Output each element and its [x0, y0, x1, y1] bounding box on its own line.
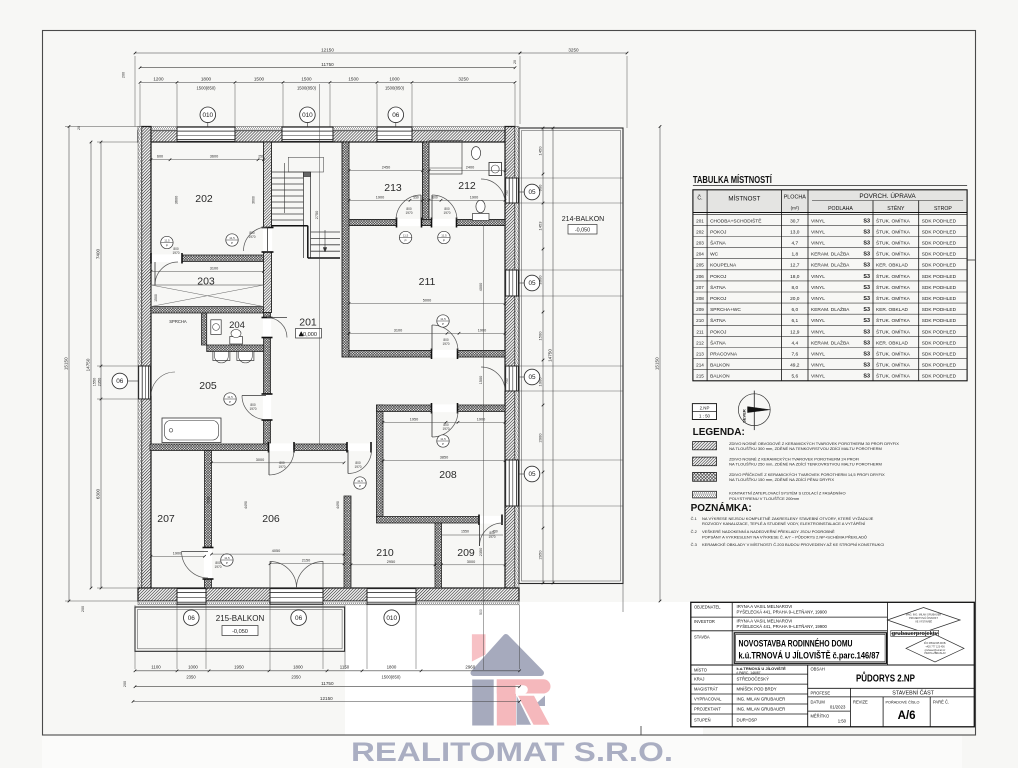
svg-text:20,0: 20,0	[790, 296, 800, 302]
svg-text:REALITOMAT S.R.O.: REALITOMAT S.R.O.	[351, 737, 673, 767]
svg-text:KER. OBKLAD: KER. OBKLAD	[876, 307, 909, 313]
svg-text:1900: 1900	[477, 417, 485, 421]
svg-text:1500(850): 1500(850)	[196, 86, 216, 91]
svg-text:1800: 1800	[201, 76, 212, 81]
svg-text:ŠATNA: ŠATNA	[710, 284, 726, 291]
svg-text:202: 202	[195, 193, 213, 205]
svg-text:1900: 1900	[478, 328, 486, 332]
svg-text:3600: 3600	[252, 196, 256, 204]
svg-text:2950: 2950	[387, 560, 395, 564]
svg-text:4000: 4000	[479, 283, 483, 291]
svg-text:KOUPELNA: KOUPELNA	[710, 263, 737, 269]
svg-text:SPRCHA+WC: SPRCHA+WC	[710, 307, 741, 313]
svg-text:ŠTUK. OMÍTKA: ŠTUK. OMÍTKA	[876, 328, 911, 335]
svg-text:REVIZE: REVIZE	[853, 699, 868, 704]
svg-text:SPRCHA: SPRCHA	[169, 319, 187, 324]
svg-text:Č.3: Č.3	[691, 542, 698, 547]
svg-text:PRACOVNA: PRACOVNA	[710, 351, 738, 357]
svg-text:2350: 2350	[291, 674, 301, 679]
svg-text:S3: S3	[863, 285, 870, 291]
svg-text:č.PARC. 146/87: č.PARC. 146/87	[737, 671, 761, 675]
svg-text:SDK PODHLED: SDK PODHLED	[922, 252, 957, 258]
svg-text:S3: S3	[863, 307, 870, 313]
svg-text:4050: 4050	[272, 549, 280, 553]
svg-text:A/6: A/6	[898, 710, 916, 722]
svg-text:1950: 1950	[234, 665, 244, 670]
svg-text:TABULKA MÍSTNOSTÍ: TABULKA MÍSTNOSTÍ	[693, 174, 772, 186]
svg-text:1200: 1200	[153, 76, 164, 81]
svg-text:VINYL: VINYL	[811, 351, 825, 357]
svg-text:213: 213	[696, 351, 704, 356]
svg-text:ŠATNA: ŠATNA	[710, 239, 726, 246]
svg-text:1950: 1950	[410, 417, 418, 421]
svg-text:600: 600	[432, 195, 438, 199]
svg-text:-0,050: -0,050	[575, 228, 590, 234]
svg-text:11,5: 11,5	[164, 239, 170, 243]
svg-text:2450: 2450	[382, 166, 390, 170]
svg-text:NA TLOUŠŤKU 150 mm, ZDĚNÉ NA Z: NA TLOUŠŤKU 150 mm, ZDĚNÉ NA ZDÍCÍ PĚNU …	[729, 477, 834, 482]
svg-text:1800: 1800	[293, 665, 303, 670]
svg-text:250: 250	[258, 155, 264, 159]
svg-text:DATUM: DATUM	[811, 699, 826, 704]
svg-text:203: 203	[197, 276, 215, 288]
svg-text:2350: 2350	[186, 674, 196, 679]
svg-text:14750: 14750	[85, 358, 90, 371]
svg-text:1500: 1500	[154, 294, 158, 302]
svg-text:P: P	[359, 484, 361, 488]
svg-text:18,0: 18,0	[790, 274, 800, 280]
svg-text:VINYL: VINYL	[811, 240, 825, 246]
svg-text:1500: 1500	[254, 76, 265, 81]
svg-text:SDK PODHLED: SDK PODHLED	[922, 329, 957, 335]
svg-text:2.NP: 2.NP	[700, 405, 710, 410]
svg-text:NOVOSTAVBA RODINNÉHO DOMU: NOVOSTAVBA RODINNÉHO DOMU	[739, 637, 853, 649]
svg-text:7400: 7400	[95, 248, 100, 259]
svg-text:209: 209	[696, 307, 704, 312]
svg-text:7500: 7500	[207, 496, 211, 504]
svg-text:MÍSTO: MÍSTO	[694, 668, 707, 673]
svg-text:200: 200	[122, 72, 126, 78]
svg-text:2400: 2400	[466, 166, 474, 170]
svg-text:215-BALKON: 215-BALKON	[216, 614, 265, 623]
svg-text:2750: 2750	[315, 211, 319, 219]
svg-text:k.ú.TRNOVÁ U JÍLOVIŠTĚ č.parc.: k.ú.TRNOVÁ U JÍLOVIŠTĚ č.parc.146/87	[739, 650, 880, 662]
svg-text:201: 201	[696, 218, 704, 223]
svg-text:DUR+DSP: DUR+DSP	[737, 718, 758, 723]
svg-text:5,6: 5,6	[791, 374, 798, 380]
svg-text:3000: 3000	[467, 560, 475, 564]
svg-text:11750: 11750	[321, 62, 334, 67]
svg-text:POKOJ: POKOJ	[710, 229, 727, 235]
svg-text:1100: 1100	[151, 665, 161, 670]
svg-text:3850: 3850	[440, 456, 448, 460]
svg-text:12150: 12150	[321, 47, 334, 52]
svg-text:11750: 11750	[321, 681, 334, 686]
svg-text:211: 211	[419, 276, 436, 288]
svg-text:1970: 1970	[488, 535, 495, 539]
svg-text:15150: 15150	[63, 357, 68, 370]
svg-text:204: 204	[696, 252, 704, 257]
svg-text:STUPEŇ: STUPEŇ	[694, 718, 711, 723]
svg-text:SDK PODHLED: SDK PODHLED	[922, 318, 957, 324]
svg-text:INVESTOR: INVESTOR	[694, 619, 715, 624]
svg-text:PROFESE: PROFESE	[811, 690, 831, 695]
svg-text:S3: S3	[863, 374, 870, 380]
svg-text:S3: S3	[863, 340, 870, 346]
svg-text:S3: S3	[863, 274, 870, 280]
svg-text:2350: 2350	[479, 548, 483, 556]
svg-text:SDK PODHLED: SDK PODHLED	[922, 240, 957, 246]
svg-text:14750: 14750	[547, 349, 552, 362]
svg-text:06: 06	[116, 378, 124, 385]
svg-text:213: 213	[384, 182, 402, 194]
svg-text:3600: 3600	[210, 155, 218, 159]
svg-text:P: P	[442, 322, 444, 326]
svg-text:1970: 1970	[443, 211, 450, 215]
svg-text:P: P	[229, 400, 231, 404]
svg-text:WC: WC	[710, 252, 719, 258]
svg-text:VYPRACOVAL: VYPRACOVAL	[694, 697, 722, 702]
svg-text:SDK PODHLED: SDK PODHLED	[922, 218, 957, 224]
svg-text:P: P	[226, 561, 228, 565]
svg-text:VINYL: VINYL	[811, 274, 825, 280]
svg-text:15150: 15150	[654, 357, 659, 370]
svg-text:207: 207	[157, 513, 175, 525]
svg-text:VINYL: VINYL	[811, 229, 825, 235]
svg-text:05: 05	[528, 374, 536, 381]
svg-text:1800: 1800	[387, 665, 397, 670]
svg-text:8,0: 8,0	[791, 285, 798, 291]
svg-text:STROP: STROP	[934, 206, 952, 212]
svg-text:3000: 3000	[256, 458, 264, 462]
svg-text:KERAMICKÉ OBKLADY V MÍSTNOSTI: KERAMICKÉ OBKLADY V MÍSTNOSTI Č.203 BUDO…	[702, 542, 884, 547]
svg-text:KER. OBKLAD: KER. OBKLAD	[876, 340, 909, 346]
svg-text:214: 214	[696, 363, 704, 368]
svg-text:POKOJ: POKOJ	[710, 296, 727, 302]
svg-text:4490: 4490	[244, 501, 248, 509]
svg-text:2150: 2150	[302, 559, 310, 563]
svg-text:0,000: 0,000	[303, 332, 317, 338]
svg-text:ŠATNA: ŠATNA	[710, 339, 726, 346]
svg-text:POLYSTYRENU V TLOUŠŤCE 200mm: POLYSTYRENU V TLOUŠŤCE 200mm	[729, 496, 800, 501]
svg-text:05: 05	[528, 471, 536, 478]
svg-text:210: 210	[376, 547, 394, 559]
svg-text:MÍSTNOST: MÍSTNOST	[728, 196, 760, 203]
svg-text:SDK PODHLED: SDK PODHLED	[922, 285, 957, 291]
svg-text:ŠTUK. OMÍTKA: ŠTUK. OMÍTKA	[876, 373, 911, 380]
svg-text:06: 06	[188, 615, 196, 622]
svg-text:SDK PODHLED: SDK PODHLED	[922, 229, 957, 235]
svg-text:3600: 3600	[175, 196, 179, 204]
svg-text:3250: 3250	[458, 76, 469, 81]
svg-text:1453: 1453	[537, 221, 542, 231]
svg-text:POZNÁMKA:: POZNÁMKA:	[691, 501, 752, 514]
svg-text:S3: S3	[863, 252, 870, 258]
svg-text:200: 200	[81, 606, 85, 612]
svg-text:ŠTUK. OMÍTKA: ŠTUK. OMÍTKA	[876, 284, 911, 291]
svg-text:210: 210	[696, 318, 704, 323]
svg-text:11,5: 11,5	[227, 395, 233, 399]
svg-text:12,9: 12,9	[790, 329, 800, 335]
svg-text:P: P	[231, 241, 233, 245]
svg-text:KER. OBKLAD: KER. OBKLAD	[876, 263, 909, 269]
svg-text:MNÍŠEK POD BRDY: MNÍŠEK POD BRDY	[737, 687, 777, 692]
svg-text:S3: S3	[863, 296, 870, 302]
svg-text:010: 010	[302, 112, 313, 119]
svg-text:1500: 1500	[479, 376, 483, 384]
svg-text:214-BALKON: 214-BALKON	[562, 216, 604, 223]
svg-text:204: 204	[229, 320, 245, 331]
svg-text:ŠTUK. OMÍTKA: ŠTUK. OMÍTKA	[876, 217, 911, 224]
svg-text:SEVER: SEVER	[742, 409, 747, 423]
svg-text:ŠTUK. OMÍTKA: ŠTUK. OMÍTKA	[876, 273, 911, 280]
svg-text:1500(850): 1500(850)	[297, 86, 317, 91]
svg-text:P: P	[166, 244, 168, 248]
svg-text:1970: 1970	[442, 342, 449, 346]
svg-text:1970: 1970	[249, 407, 256, 411]
svg-text:S3: S3	[863, 229, 870, 235]
svg-text:S3: S3	[863, 351, 870, 357]
svg-text:212: 212	[696, 340, 704, 345]
svg-text:SDK PODHLED: SDK PODHLED	[922, 274, 957, 280]
svg-text:1970: 1970	[442, 427, 449, 431]
svg-text:S3: S3	[863, 218, 870, 224]
svg-text:900: 900	[537, 184, 542, 191]
svg-text:P: P	[443, 239, 445, 243]
svg-text:206: 206	[262, 513, 280, 525]
svg-text:1500: 1500	[537, 331, 542, 341]
svg-text:1,8: 1,8	[791, 252, 798, 258]
svg-text:49,2: 49,2	[790, 363, 800, 369]
svg-text:MAGISTRÁT: MAGISTRÁT	[694, 687, 718, 692]
svg-text:212: 212	[458, 180, 476, 192]
svg-text:ŠTUK. OMÍTKA: ŠTUK. OMÍTKA	[876, 239, 911, 246]
svg-text:STAVEBNÍ ČÁST: STAVEBNÍ ČÁST	[892, 690, 934, 697]
svg-text:200: 200	[123, 681, 127, 687]
svg-text:4490: 4490	[336, 501, 340, 509]
svg-text:OBSAH: OBSAH	[811, 666, 825, 671]
svg-text:VINYL: VINYL	[811, 363, 825, 369]
svg-text:ROZVODY KANALIZACE, TEPLÉ A ST: ROZVODY KANALIZACE, TEPLÉ A STUDENÉ VODY…	[702, 521, 866, 526]
svg-text:ŠTUK. OMÍTKA: ŠTUK. OMÍTKA	[876, 228, 911, 235]
svg-text:ŠTUK. OMÍTKA: ŠTUK. OMÍTKA	[876, 362, 911, 369]
svg-text:S3: S3	[863, 363, 870, 369]
svg-text:1500(850): 1500(850)	[385, 86, 405, 91]
svg-text:500: 500	[479, 609, 483, 615]
svg-text:SDK PODHLED: SDK PODHLED	[922, 351, 957, 357]
svg-text:S3: S3	[863, 318, 870, 324]
svg-text:1 : 50: 1 : 50	[699, 413, 711, 418]
svg-text:1550: 1550	[93, 378, 97, 386]
svg-text:215: 215	[696, 374, 704, 379]
svg-text:1970: 1970	[278, 465, 285, 469]
svg-text:1900: 1900	[470, 195, 478, 199]
svg-text:POVRCH. ÚPRAVA: POVRCH. ÚPRAVA	[859, 191, 916, 200]
svg-text:1550: 1550	[461, 530, 469, 534]
svg-text:208: 208	[696, 296, 704, 301]
svg-text:206: 206	[696, 274, 704, 279]
svg-text:1150: 1150	[340, 665, 350, 670]
svg-text:06: 06	[392, 112, 400, 119]
svg-text:ŠTUK. OMÍTKA: ŠTUK. OMÍTKA	[876, 317, 911, 324]
svg-text:ING. MILAN GRUBAUER: ING. MILAN GRUBAUER	[737, 707, 786, 712]
svg-text:211: 211	[696, 329, 704, 334]
svg-text:Č.: Č.	[697, 195, 702, 202]
svg-text:VINYL: VINYL	[811, 218, 825, 224]
svg-text:1000: 1000	[537, 377, 542, 387]
svg-text:STŘEDOČESKÝ: STŘEDOČESKÝ	[737, 677, 770, 682]
svg-text:201: 201	[299, 317, 317, 329]
svg-text:1900: 1900	[376, 195, 384, 199]
svg-text:205: 205	[696, 263, 704, 268]
svg-text:POKOJ: POKOJ	[710, 329, 727, 335]
svg-text:12150: 12150	[320, 696, 333, 701]
svg-text:PRAHA-ZBRASLAV: PRAHA-ZBRASLAV	[924, 652, 946, 655]
svg-text:1:50: 1:50	[838, 718, 847, 723]
svg-text:NA TLOUŠŤKU 300 mm, ZDĚNÉ NA T: NA TLOUŠŤKU 300 mm, ZDĚNÉ NA TENKOVRSTVO…	[729, 446, 882, 451]
svg-text:4,7: 4,7	[791, 240, 798, 246]
svg-text:11,5: 11,5	[224, 556, 230, 560]
svg-text:VINYL: VINYL	[811, 374, 825, 380]
svg-text:1500: 1500	[301, 76, 312, 81]
svg-text:600: 600	[157, 155, 163, 159]
svg-text:05: 05	[528, 280, 536, 287]
svg-text:STAVBA: STAVBA	[694, 635, 710, 640]
svg-text:VINYL: VINYL	[811, 296, 825, 302]
svg-text:POŘADOVÉ ČÍSLO: POŘADOVÉ ČÍSLO	[886, 699, 920, 704]
svg-text:12,7: 12,7	[790, 263, 800, 269]
svg-text:6,0: 6,0	[791, 307, 798, 313]
svg-text:SDK PODHLED: SDK PODHLED	[922, 363, 957, 369]
svg-text:5000: 5000	[423, 299, 431, 303]
svg-text:KRAJ: KRAJ	[694, 677, 704, 682]
svg-text:1970: 1970	[214, 565, 221, 569]
svg-text:S3: S3	[863, 240, 870, 246]
svg-text:ŠATNA: ŠATNA	[710, 317, 726, 324]
svg-text:IRYNA A VASIL MELNAROVI: IRYNA A VASIL MELNAROVI	[737, 604, 793, 609]
svg-text:207: 207	[696, 285, 704, 290]
svg-text:Č.1: Č.1	[691, 516, 698, 521]
svg-text:POPSÁNY A VYKRESLENY NA VÝKRES: POPSÁNY A VYKRESLENY NA VÝKRESE Č. A/7 –…	[702, 534, 867, 539]
svg-text:2350: 2350	[98, 378, 102, 386]
svg-text:1970: 1970	[248, 235, 255, 239]
svg-text:SDK PODHLED: SDK PODHLED	[922, 307, 957, 313]
svg-text:05: 05	[528, 189, 536, 196]
svg-text:VE VÝSTAVBĚ: VE VÝSTAVBĚ	[915, 621, 932, 624]
svg-text:PLOCHA: PLOCHA	[784, 195, 807, 201]
svg-text:PŮDORYS 2.NP: PŮDORYS 2.NP	[856, 671, 915, 685]
svg-text:01/2023: 01/2023	[830, 704, 846, 709]
svg-text:6,1: 6,1	[791, 318, 798, 324]
svg-text:-0,050: -0,050	[232, 629, 248, 635]
svg-text:3100: 3100	[210, 266, 218, 270]
svg-text:202: 202	[696, 229, 704, 234]
svg-text:11,5: 11,5	[229, 236, 235, 240]
svg-text:ING. MILAN GRUBAUER: ING. MILAN GRUBAUER	[737, 697, 786, 702]
svg-text:STĚNY: STĚNY	[887, 204, 905, 212]
svg-text:PYŠELECKÁ 441, PRAHA 9–LETŇANY: PYŠELECKÁ 441, PRAHA 9–LETŇANY, 19900	[737, 624, 828, 629]
svg-text:1000: 1000	[188, 665, 198, 670]
svg-text:010: 010	[386, 615, 397, 622]
svg-text:2950: 2950	[537, 550, 542, 560]
svg-text:P: P	[442, 442, 444, 446]
svg-text:PYŠELECKÁ 441, PRAHA 9–LETŇANY: PYŠELECKÁ 441, PRAHA 9–LETŇANY, 19900	[737, 610, 828, 615]
svg-text:1970: 1970	[405, 211, 412, 215]
svg-text:11,5: 11,5	[357, 479, 363, 483]
svg-text:SDK PODHLED: SDK PODHLED	[922, 340, 957, 346]
svg-text:Č.2: Č.2	[691, 529, 698, 534]
svg-text:S3: S3	[863, 329, 870, 335]
svg-text:750: 750	[505, 190, 509, 196]
svg-text:11,5: 11,5	[441, 234, 447, 238]
svg-text:ŠTUK. OMÍTKA: ŠTUK. OMÍTKA	[876, 251, 911, 258]
svg-text:OBJEDNATEL: OBJEDNATEL	[694, 605, 721, 610]
svg-text:6300: 6300	[95, 488, 100, 499]
svg-text:11,5: 11,5	[440, 437, 446, 441]
svg-text:3100: 3100	[394, 328, 402, 332]
svg-text:20: 20	[513, 60, 517, 64]
svg-text:550: 550	[413, 195, 419, 199]
svg-text:3250: 3250	[568, 47, 579, 52]
svg-text:7,6: 7,6	[791, 351, 798, 357]
svg-text:203: 203	[696, 240, 704, 245]
svg-text:ŠTUK. OMÍTKA: ŠTUK. OMÍTKA	[876, 295, 911, 302]
svg-text:1500: 1500	[348, 76, 359, 81]
svg-text:1450: 1450	[537, 146, 542, 156]
svg-text:P: P	[405, 239, 407, 243]
svg-text:S3: S3	[863, 263, 870, 269]
svg-text:SDK PODHLED: SDK PODHLED	[922, 374, 957, 380]
svg-text:11,5: 11,5	[440, 317, 446, 321]
svg-text:750: 750	[505, 378, 509, 384]
svg-text:2000: 2000	[537, 433, 542, 443]
svg-text:06: 06	[295, 615, 303, 622]
svg-text:208: 208	[439, 469, 457, 481]
svg-text:11,5: 11,5	[403, 234, 409, 238]
svg-text:MĚŘÍTKO: MĚŘÍTKO	[811, 713, 830, 718]
svg-text:1500(850): 1500(850)	[381, 674, 401, 679]
svg-text:SDK PODHLED: SDK PODHLED	[922, 263, 957, 269]
svg-text:VINYL: VINYL	[811, 318, 825, 324]
svg-text:30,7: 30,7	[790, 218, 800, 224]
svg-text:NA TLOUŠŤKU 250 mm, ZDĚNÉ NA Z: NA TLOUŠŤKU 250 mm, ZDĚNÉ NA ZDÍCÍ TENKO…	[729, 462, 882, 467]
svg-text:(m²): (m²)	[791, 206, 800, 211]
svg-text:1000: 1000	[389, 76, 400, 81]
svg-text:ŠTUK. OMÍTKA: ŠTUK. OMÍTKA	[876, 350, 911, 357]
svg-text:205: 205	[199, 380, 217, 392]
svg-text:IRYNA A VASIL MELNAROVI: IRYNA A VASIL MELNAROVI	[737, 618, 793, 623]
svg-text:209: 209	[457, 547, 475, 559]
svg-text:4,4: 4,4	[791, 340, 798, 346]
svg-text:PROJEKTANT: PROJEKTANT	[694, 707, 721, 712]
svg-text:010: 010	[202, 112, 213, 119]
svg-text:VINYL: VINYL	[811, 285, 825, 291]
svg-text:BALKON: BALKON	[710, 363, 730, 369]
svg-text:POKOJ: POKOJ	[710, 274, 727, 280]
svg-text:2000: 2000	[537, 275, 542, 285]
svg-text:13,0: 13,0	[790, 229, 800, 235]
svg-text:SDK PODHLED: SDK PODHLED	[922, 296, 957, 302]
svg-text:VINYL: VINYL	[811, 329, 825, 335]
svg-text:1900: 1900	[173, 551, 181, 555]
svg-text:BALKON: BALKON	[710, 374, 730, 380]
svg-text:1970: 1970	[172, 251, 179, 255]
svg-text:1970: 1970	[354, 465, 361, 469]
svg-text:LEGENDA:: LEGENDA:	[693, 427, 745, 438]
svg-text:PODLAHA: PODLAHA	[828, 206, 853, 212]
svg-text:2960: 2960	[465, 665, 475, 670]
svg-text:PARÉ Č.: PARÉ Č.	[933, 699, 949, 704]
